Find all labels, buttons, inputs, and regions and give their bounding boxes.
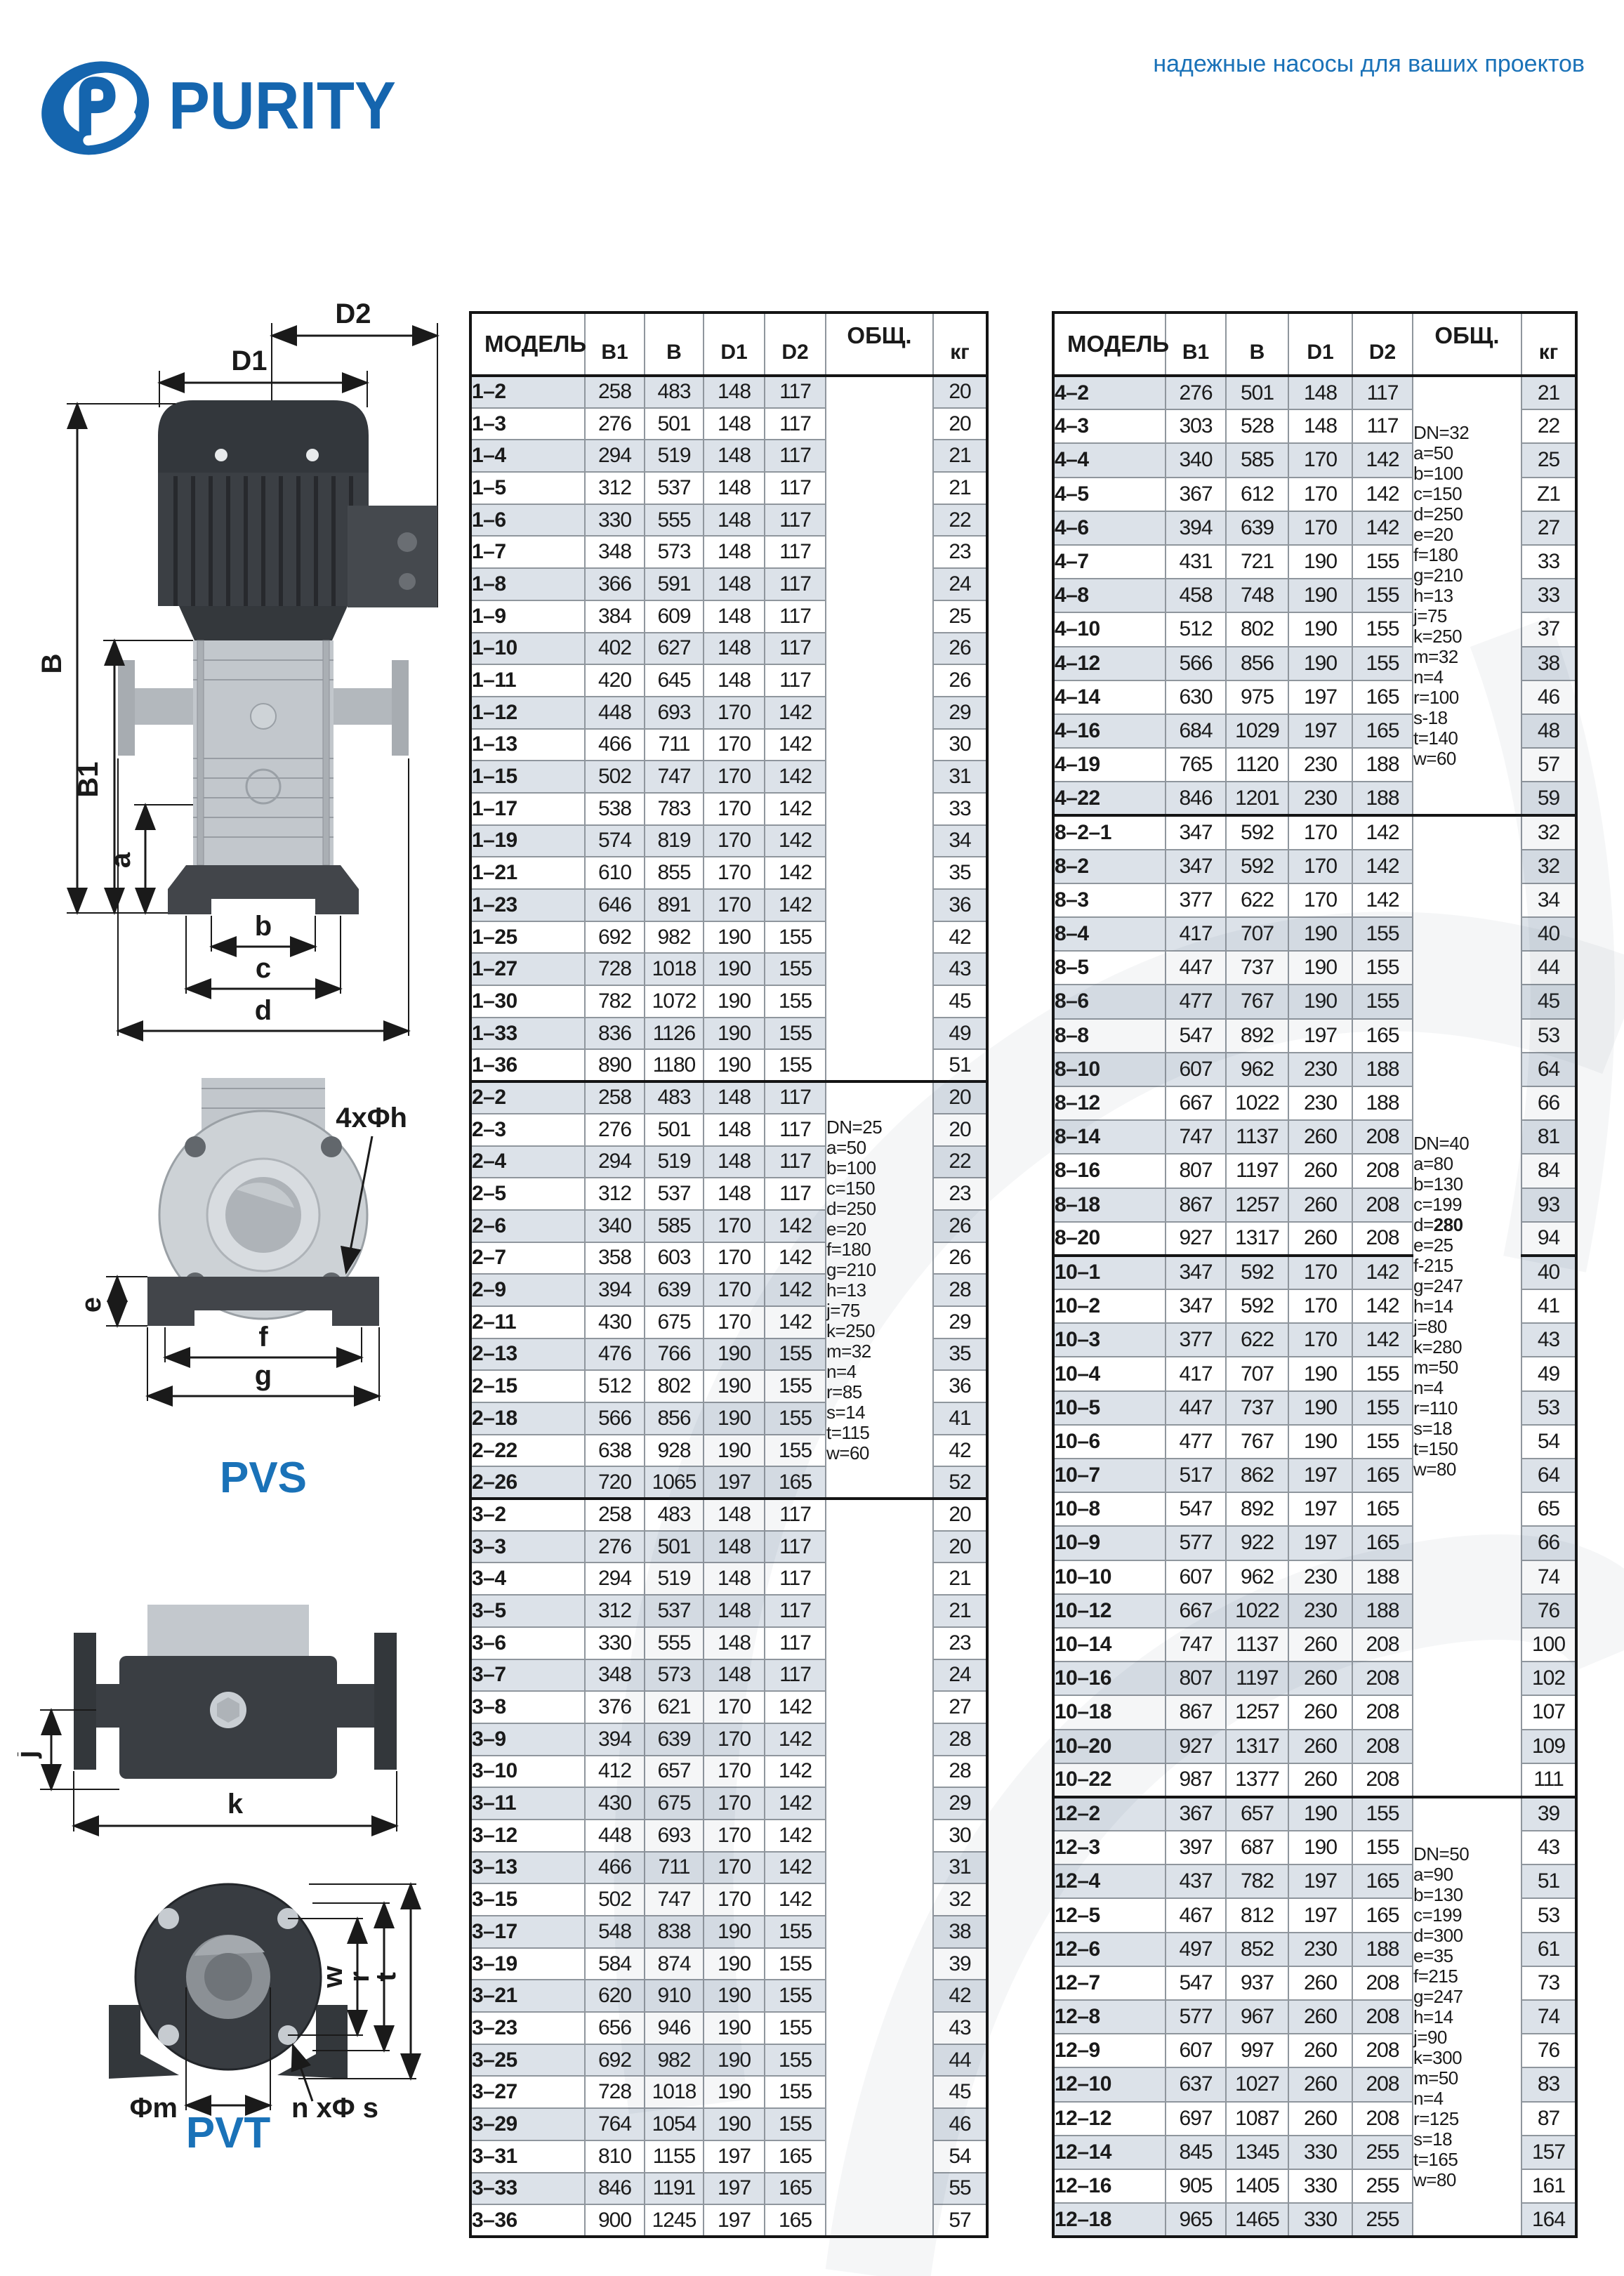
cell-d1: 197 xyxy=(704,1466,765,1499)
cell-d2: 155 xyxy=(1352,579,1413,612)
cell-d1: 170 xyxy=(704,889,765,921)
cell-d1: 148 xyxy=(704,1146,765,1178)
cell-d2: 117 xyxy=(765,536,826,568)
cell-model: 3–7 xyxy=(470,1659,585,1692)
cell-d2: 142 xyxy=(765,1242,826,1275)
cell-d1: 190 xyxy=(704,953,765,985)
cell-d2: 188 xyxy=(1352,1933,1413,1966)
cell-d1: 170 xyxy=(1288,478,1352,511)
dim-label-phi-m: Φm xyxy=(130,2093,178,2124)
cell-model: 4–4 xyxy=(1053,443,1166,477)
note-line: r=85 xyxy=(826,1382,932,1402)
note-line: f-215 xyxy=(1413,1256,1521,1276)
cell-d2: 155 xyxy=(765,1049,826,1081)
cell-b: 501 xyxy=(645,1114,704,1146)
cell-d1: 197 xyxy=(1288,1526,1352,1560)
cell-model: 3–23 xyxy=(470,2012,585,2044)
cell-model: 1–25 xyxy=(470,921,585,954)
cell-d2: 208 xyxy=(1352,1222,1413,1256)
cell-kg: 61 xyxy=(1521,1933,1576,1966)
cell-kg: 52 xyxy=(933,1466,987,1499)
cell-model: 12–14 xyxy=(1053,2136,1166,2169)
cell-d1: 148 xyxy=(704,1627,765,1659)
cell-b1: 431 xyxy=(1166,545,1226,579)
cell-model: 3–29 xyxy=(470,2108,585,2140)
cell-b1: 448 xyxy=(585,697,645,729)
cell-d2: 188 xyxy=(1352,748,1413,782)
cell-b1: 810 xyxy=(585,2140,645,2173)
cell-d1: 148 xyxy=(704,600,765,633)
cell-d2: 165 xyxy=(765,1466,826,1499)
note-line: f=180 xyxy=(826,1239,932,1260)
cell-b1: 846 xyxy=(585,2173,645,2205)
cell-d2: 155 xyxy=(1352,917,1413,951)
cell-kg: 66 xyxy=(1521,1526,1576,1560)
cell-model: 2–3 xyxy=(470,1114,585,1146)
cell-d2: 208 xyxy=(1352,1695,1413,1729)
notes-cell xyxy=(826,376,933,1081)
cell-b: 1245 xyxy=(645,2204,704,2237)
cell-kg: 20 xyxy=(933,408,987,440)
cell-b: 573 xyxy=(645,1659,704,1692)
cell-b: 519 xyxy=(645,1146,704,1178)
cell-b1: 497 xyxy=(1166,1933,1226,1966)
cell-b1: 258 xyxy=(585,376,645,408)
cell-kg: 21 xyxy=(933,440,987,472)
cell-model: 1–17 xyxy=(470,793,585,825)
cell-kg: 36 xyxy=(933,1370,987,1402)
suction-port xyxy=(133,688,193,725)
note-line: n=4 xyxy=(1413,667,1521,688)
cell-b: 962 xyxy=(1226,1560,1288,1594)
cell-d1: 148 xyxy=(704,1178,765,1210)
cell-b1: 367 xyxy=(1166,1797,1226,1831)
cell-b: 675 xyxy=(645,1306,704,1338)
cell-model: 3–21 xyxy=(470,1980,585,2012)
cell-d2: 142 xyxy=(765,889,826,921)
cell-d1: 190 xyxy=(1288,612,1352,646)
cell-kg: 24 xyxy=(933,568,987,600)
cell-kg: 39 xyxy=(933,1948,987,1980)
col-header-obsh: ОБЩ. xyxy=(826,313,933,376)
cell-b: 537 xyxy=(645,1178,704,1210)
cell-b1: 377 xyxy=(1166,883,1226,917)
cell-model: 1–12 xyxy=(470,697,585,729)
cell-b: 1072 xyxy=(645,985,704,1018)
cell-kg: 26 xyxy=(933,664,987,697)
cell-model: 4–5 xyxy=(1053,478,1166,511)
cell-d1: 230 xyxy=(1288,1594,1352,1628)
cell-d2: 142 xyxy=(765,1691,826,1723)
cell-model: 1–11 xyxy=(470,664,585,697)
cell-kg: 94 xyxy=(1521,1222,1576,1256)
note-line: k=300 xyxy=(1413,2048,1521,2068)
cell-d2: 117 xyxy=(1352,409,1413,443)
cell-b1: 458 xyxy=(1166,579,1226,612)
cell-b: 1201 xyxy=(1226,782,1288,815)
note-line: g=210 xyxy=(826,1260,932,1280)
cell-model: 12–9 xyxy=(1053,2034,1166,2067)
cell-d2: 155 xyxy=(1352,951,1413,985)
brand-logo: PURITY xyxy=(37,53,416,159)
cell-kg: 20 xyxy=(933,1531,987,1563)
cell-d1: 190 xyxy=(704,2076,765,2108)
cell-kg: 43 xyxy=(933,2012,987,2044)
cell-d2: 142 xyxy=(765,1306,826,1338)
cell-b1: 330 xyxy=(585,504,645,537)
cell-model: 2–13 xyxy=(470,1338,585,1371)
cell-kg: 29 xyxy=(933,1787,987,1820)
note-line: d=250 xyxy=(1413,504,1521,525)
terminal-box xyxy=(348,506,437,607)
cell-model: 10–4 xyxy=(1053,1357,1166,1390)
note-line: h=14 xyxy=(1413,2007,1521,2027)
cell-d1: 170 xyxy=(704,1242,765,1275)
cell-d2: 142 xyxy=(1352,850,1413,883)
cell-model: 3–13 xyxy=(470,1852,585,1884)
cell-b: 1191 xyxy=(645,2173,704,2205)
cell-b1: 430 xyxy=(585,1787,645,1820)
cell-d1: 190 xyxy=(1288,579,1352,612)
note-line: s-18 xyxy=(1413,708,1521,728)
cell-model: 4–19 xyxy=(1053,748,1166,782)
cell-kg: 87 xyxy=(1521,2102,1576,2136)
cell-model: 2–11 xyxy=(470,1306,585,1338)
note-line: s=18 xyxy=(1413,1419,1521,1439)
cell-b: 747 xyxy=(645,1883,704,1916)
cell-b1: 394 xyxy=(585,1274,645,1306)
cell-b1: 348 xyxy=(585,1659,645,1692)
cell-b: 1377 xyxy=(1226,1763,1288,1797)
cell-b1: 697 xyxy=(1166,2102,1226,2136)
cell-d1: 190 xyxy=(704,1402,765,1435)
cell-d1: 260 xyxy=(1288,1695,1352,1729)
cell-b1: 366 xyxy=(585,568,645,600)
dim-label-d: d xyxy=(255,995,272,1026)
cell-b1: 384 xyxy=(585,600,645,633)
cell-model: 1–23 xyxy=(470,889,585,921)
cell-d1: 197 xyxy=(704,2173,765,2205)
cell-d1: 260 xyxy=(1288,1222,1352,1256)
cell-d2: 155 xyxy=(1352,1797,1413,1831)
cell-d1: 190 xyxy=(704,2044,765,2077)
cell-kg: 28 xyxy=(933,1723,987,1756)
cell-d1: 260 xyxy=(1288,1730,1352,1763)
cell-d1: 170 xyxy=(1288,443,1352,477)
note-line: c=150 xyxy=(826,1178,932,1199)
cell-b: 1137 xyxy=(1226,1120,1288,1154)
cell-b1: 420 xyxy=(585,664,645,697)
cell-b: 693 xyxy=(645,1820,704,1852)
cell-b1: 258 xyxy=(585,1499,645,1531)
cell-b1: 466 xyxy=(585,729,645,761)
cell-model: 8–3 xyxy=(1053,883,1166,917)
cell-model: 3–8 xyxy=(470,1691,585,1723)
cell-d1: 148 xyxy=(704,664,765,697)
cell-kg: 27 xyxy=(933,1691,987,1723)
cell-b: 585 xyxy=(645,1210,704,1242)
cell-b: 622 xyxy=(1226,883,1288,917)
cell-b: 707 xyxy=(1226,1357,1288,1390)
cell-d2: 188 xyxy=(1352,1594,1413,1628)
notes-cell: DN=40a=80b=130c=199d=280e=25f-215g=247h=… xyxy=(1413,815,1521,1796)
motor-cap xyxy=(158,400,369,474)
cell-kg: 20 xyxy=(933,1114,987,1146)
cell-b1: 367 xyxy=(1166,478,1226,511)
cell-d2: 142 xyxy=(1352,1323,1413,1357)
cell-b: 585 xyxy=(1226,443,1288,477)
note-line: a=50 xyxy=(826,1138,932,1158)
cell-model: 3–12 xyxy=(470,1820,585,1852)
cell-d1: 260 xyxy=(1288,2000,1352,2034)
cell-d2: 165 xyxy=(1352,1898,1413,1932)
cell-model: 2–15 xyxy=(470,1370,585,1402)
cell-model: 12–5 xyxy=(1053,1898,1166,1932)
cell-model: 1–4 xyxy=(470,440,585,472)
note-line: DN=50 xyxy=(1413,1844,1521,1864)
cell-d1: 190 xyxy=(704,1435,765,1467)
table-header-row: МОДЕЛЬ B1 B D1 D2 ОБЩ. кг xyxy=(1053,313,1576,376)
cell-d2: 142 xyxy=(1352,883,1413,917)
cell-d1: 330 xyxy=(1288,2203,1352,2237)
cell-model: 1–36 xyxy=(470,1049,585,1081)
cell-b: 819 xyxy=(645,825,704,857)
cell-d1: 260 xyxy=(1288,2102,1352,2136)
cell-b: 639 xyxy=(1226,511,1288,545)
notes-cell: DN=50a=90b=130c=199d=300e=35f=215g=247h=… xyxy=(1413,1797,1521,2237)
cell-b1: 447 xyxy=(1166,951,1226,985)
cell-b1: 656 xyxy=(585,2012,645,2044)
note-line: f=180 xyxy=(1413,545,1521,565)
cell-kg: 21 xyxy=(933,1595,987,1627)
cell-b: 1257 xyxy=(1226,1695,1288,1729)
cell-model: 8–14 xyxy=(1053,1120,1166,1154)
cell-model: 4–2 xyxy=(1053,376,1166,409)
brand-name: PURITY xyxy=(169,67,396,145)
cell-d1: 148 xyxy=(704,408,765,440)
cell-d1: 148 xyxy=(704,1595,765,1627)
cell-kg: 25 xyxy=(1521,443,1576,477)
note-line: r=110 xyxy=(1413,1398,1521,1419)
note-line: s=14 xyxy=(826,1402,932,1423)
cell-d2: 155 xyxy=(1352,1425,1413,1459)
table-row: 1–225848314811720 xyxy=(470,376,987,408)
cell-kg: 73 xyxy=(1521,1966,1576,2000)
cell-kg: 42 xyxy=(933,1435,987,1467)
note-line: DN=25 xyxy=(826,1117,932,1138)
cell-b1: 987 xyxy=(1166,1763,1226,1797)
cell-d2: 155 xyxy=(765,1018,826,1050)
cell-model: 3–5 xyxy=(470,1595,585,1627)
cell-d2: 142 xyxy=(765,1274,826,1306)
cell-kg: 49 xyxy=(933,1018,987,1050)
cell-kg: 102 xyxy=(1521,1662,1576,1695)
cell-b: 711 xyxy=(645,1852,704,1884)
cell-model: 12–4 xyxy=(1053,1864,1166,1898)
cell-d2: 155 xyxy=(765,1402,826,1435)
cell-b: 1180 xyxy=(645,1049,704,1081)
cell-b: 1257 xyxy=(1226,1188,1288,1222)
dim-label-c: c xyxy=(256,953,271,984)
cell-model: 8–12 xyxy=(1053,1086,1166,1120)
cell-b: 975 xyxy=(1226,680,1288,714)
cell-kg: 31 xyxy=(933,761,987,793)
cell-b: 852 xyxy=(1226,1933,1288,1966)
cell-b1: 927 xyxy=(1166,1222,1226,1256)
cell-kg: 93 xyxy=(1521,1188,1576,1222)
cell-b1: 377 xyxy=(1166,1323,1226,1357)
cell-d2: 155 xyxy=(1352,1831,1413,1864)
cell-d2: 142 xyxy=(1352,1256,1413,1289)
cell-d1: 190 xyxy=(704,2108,765,2140)
cell-b1: 340 xyxy=(1166,443,1226,477)
note-line: d=300 xyxy=(1413,1926,1521,1946)
cell-kg: 45 xyxy=(933,985,987,1018)
pvt-right-flange xyxy=(374,1633,397,1770)
cell-d1: 190 xyxy=(1288,1797,1352,1831)
cell-b1: 312 xyxy=(585,1595,645,1627)
cell-kg: 20 xyxy=(933,1499,987,1531)
cell-model: 3–31 xyxy=(470,2140,585,2173)
cell-model: 4–6 xyxy=(1053,511,1166,545)
cell-d2: 165 xyxy=(1352,1492,1413,1526)
cell-d1: 190 xyxy=(1288,985,1352,1018)
cell-d1: 190 xyxy=(1288,545,1352,579)
cell-model: 10–7 xyxy=(1053,1459,1166,1492)
cell-d1: 170 xyxy=(1288,883,1352,917)
cell-kg: 51 xyxy=(1521,1864,1576,1898)
note-line: j=75 xyxy=(826,1301,932,1321)
cell-b1: 330 xyxy=(585,1627,645,1659)
cell-b1: 294 xyxy=(585,440,645,472)
dim-label-t: t xyxy=(371,1972,402,1981)
cell-b1: 294 xyxy=(585,1563,645,1595)
cell-d1: 170 xyxy=(704,1210,765,1242)
cell-b: 592 xyxy=(1226,815,1288,849)
cell-kg: 33 xyxy=(933,793,987,825)
cell-d1: 190 xyxy=(1288,1357,1352,1390)
cell-kg: 32 xyxy=(1521,815,1576,849)
note-line: k=250 xyxy=(1413,626,1521,647)
cell-model: 3–3 xyxy=(470,1531,585,1563)
cell-b1: 684 xyxy=(1166,714,1226,748)
cell-kg: 23 xyxy=(933,1627,987,1659)
cell-d1: 197 xyxy=(1288,1898,1352,1932)
cell-model: 10–6 xyxy=(1053,1425,1166,1459)
cell-kg: 39 xyxy=(1521,1797,1576,1831)
cell-d1: 148 xyxy=(1288,376,1352,409)
dimensions-table-left: МОДЕЛЬ B1 B D1 D2 ОБЩ. кг 1–225848314811… xyxy=(469,311,989,2238)
cell-kg: 35 xyxy=(933,857,987,889)
cell-b1: 782 xyxy=(585,985,645,1018)
cell-kg: 40 xyxy=(1521,917,1576,951)
cell-b: 892 xyxy=(1226,1492,1288,1526)
cell-b: 639 xyxy=(645,1723,704,1756)
cell-kg: 57 xyxy=(1521,748,1576,782)
cell-d1: 260 xyxy=(1288,2067,1352,2101)
cell-model: 10–5 xyxy=(1053,1391,1166,1425)
cell-d2: 142 xyxy=(1352,478,1413,511)
cell-d1: 190 xyxy=(704,1018,765,1050)
cell-d1: 190 xyxy=(704,1980,765,2012)
note-line: h=13 xyxy=(1413,586,1521,606)
cell-b1: 477 xyxy=(1166,1425,1226,1459)
cell-model: 4–12 xyxy=(1053,647,1166,680)
cell-kg: 26 xyxy=(933,633,987,665)
cell-b: 962 xyxy=(1226,1053,1288,1086)
cell-d2: 117 xyxy=(765,1627,826,1659)
cell-b: 748 xyxy=(1226,579,1288,612)
cell-b1: 512 xyxy=(1166,612,1226,646)
cell-b: 802 xyxy=(1226,612,1288,646)
cell-kg: 41 xyxy=(1521,1289,1576,1323)
cell-d2: 117 xyxy=(765,440,826,472)
table-row: 3–225848314811720 xyxy=(470,1499,987,1531)
cell-b1: 607 xyxy=(1166,1053,1226,1086)
cell-b1: 607 xyxy=(1166,2034,1226,2067)
cell-d1: 260 xyxy=(1288,1966,1352,2000)
cell-model: 1–8 xyxy=(470,568,585,600)
dim-label-d2: D2 xyxy=(335,298,371,329)
cell-d1: 170 xyxy=(704,1306,765,1338)
cell-b: 693 xyxy=(645,697,704,729)
cell-d2: 117 xyxy=(765,633,826,665)
cell-d2: 208 xyxy=(1352,1763,1413,1797)
cell-model: 12–6 xyxy=(1053,1933,1166,1966)
cell-b: 592 xyxy=(1226,1256,1288,1289)
cell-model: 2–4 xyxy=(470,1146,585,1178)
cell-kg: 51 xyxy=(933,1049,987,1081)
cell-b: 767 xyxy=(1226,1425,1288,1459)
cell-b1: 566 xyxy=(585,1402,645,1435)
cell-d2: 142 xyxy=(1352,1289,1413,1323)
motor-lantern xyxy=(179,606,348,640)
cell-model: 1–19 xyxy=(470,825,585,857)
cell-model: 8–2–1 xyxy=(1053,815,1166,849)
cell-kg: 164 xyxy=(1521,2203,1576,2237)
cell-model: 2–18 xyxy=(470,1402,585,1435)
cell-kg: 107 xyxy=(1521,1695,1576,1729)
cell-kg: 49 xyxy=(1521,1357,1576,1390)
note-line: m=50 xyxy=(1413,1357,1521,1378)
cell-b: 946 xyxy=(645,2012,704,2044)
cell-kg: 35 xyxy=(933,1338,987,1371)
cell-model: 8–10 xyxy=(1053,1053,1166,1086)
cell-model: 2–22 xyxy=(470,1435,585,1467)
cell-kg: 43 xyxy=(1521,1323,1576,1357)
cell-b1: 376 xyxy=(585,1691,645,1723)
cell-d2: 117 xyxy=(765,1499,826,1531)
cell-model: 1–27 xyxy=(470,953,585,985)
cell-kg: 23 xyxy=(933,536,987,568)
cell-d2: 142 xyxy=(765,697,826,729)
cell-b1: 447 xyxy=(1166,1391,1226,1425)
pump-base xyxy=(168,865,359,914)
cell-model: 4–16 xyxy=(1053,714,1166,748)
note-line: f=215 xyxy=(1413,1966,1521,1987)
cell-model: 4–3 xyxy=(1053,409,1166,443)
cell-kg: 28 xyxy=(933,1756,987,1788)
cell-model: 12–18 xyxy=(1053,2203,1166,2237)
cell-model: 12–2 xyxy=(1053,1797,1166,1831)
cell-b1: 667 xyxy=(1166,1086,1226,1120)
cell-d2: 142 xyxy=(765,857,826,889)
note-line: w=80 xyxy=(1413,2170,1521,2190)
dim-label-bolt-holes: n xΦ s xyxy=(291,2093,378,2124)
cell-b1: 294 xyxy=(585,1146,645,1178)
cell-b1: 638 xyxy=(585,1435,645,1467)
cell-d2: 142 xyxy=(1352,815,1413,849)
